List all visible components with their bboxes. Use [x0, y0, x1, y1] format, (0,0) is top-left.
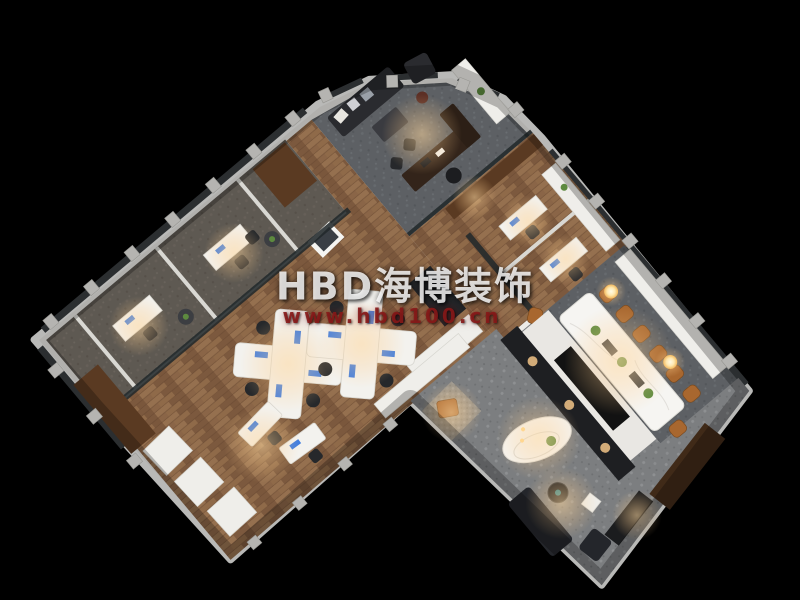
- guest-chair: [403, 138, 416, 151]
- watermark-url: www.hbd100.cn: [282, 304, 501, 328]
- watermark-brand: HBD海博装饰: [276, 256, 534, 311]
- render-canvas: Bird's-eye 3D interior render of an L-sh…: [0, 0, 800, 600]
- guest-chair: [390, 157, 403, 170]
